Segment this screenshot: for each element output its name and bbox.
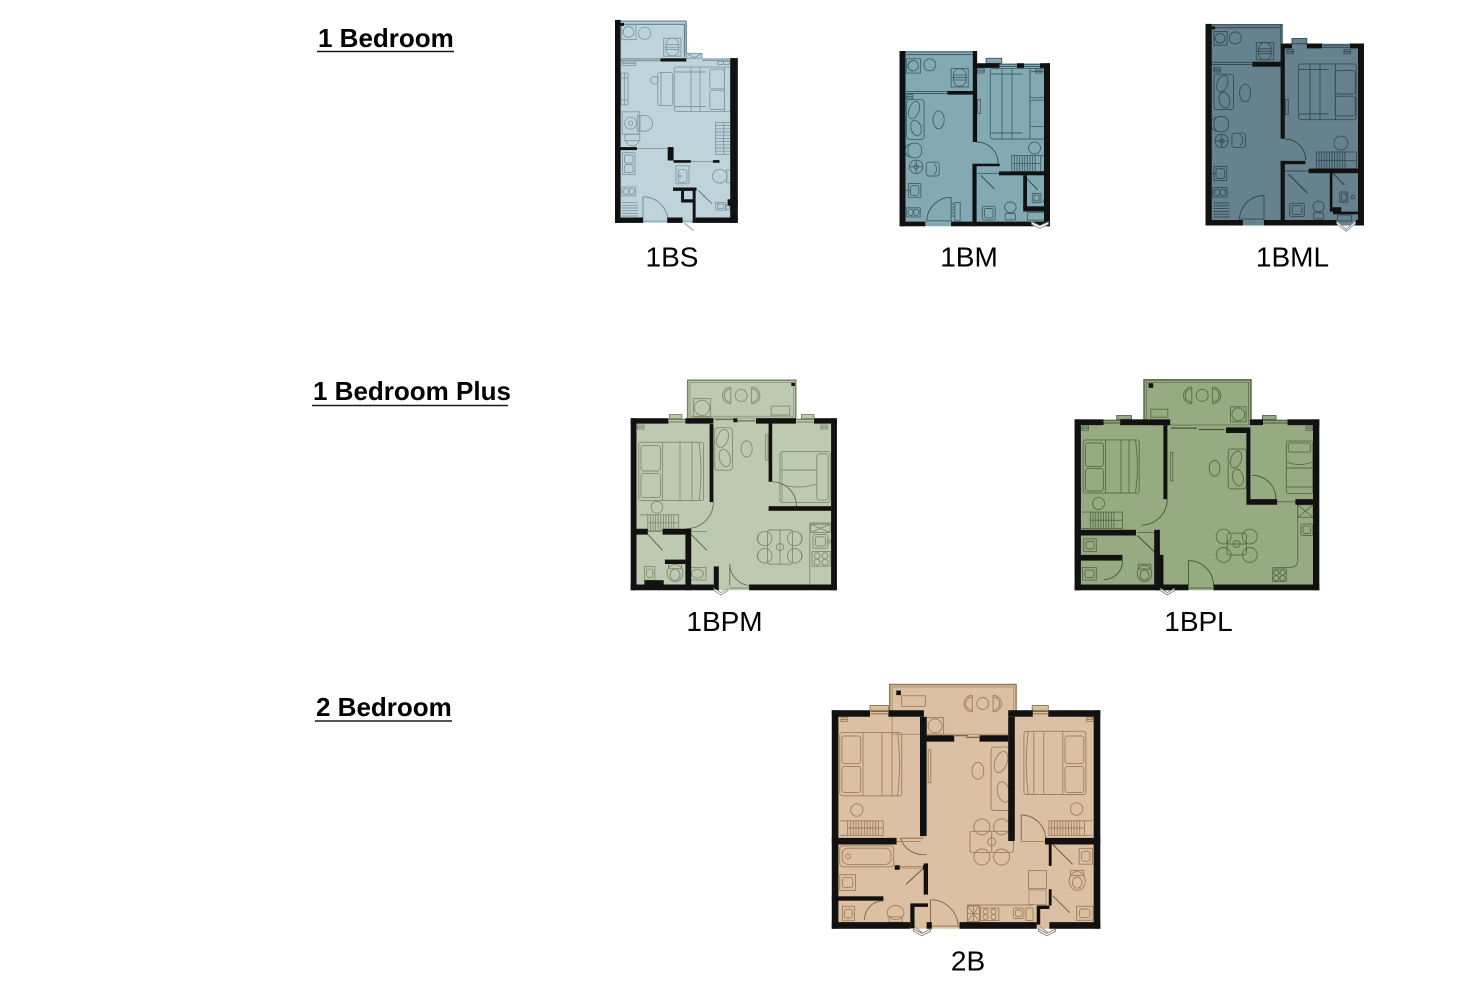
svg-text:1BS: 1BS [646,242,699,273]
svg-text:1BPM: 1BPM [686,606,762,637]
svg-text:1BPL: 1BPL [1164,606,1233,637]
svg-text:2B: 2B [951,946,985,977]
svg-text:1BML: 1BML [1256,242,1329,273]
svg-text:1BM: 1BM [940,242,998,273]
svg-text:1 Bedroom: 1 Bedroom [318,23,454,53]
svg-text:1 Bedroom Plus: 1 Bedroom Plus [313,376,511,406]
svg-text:2 Bedroom: 2 Bedroom [316,692,452,722]
